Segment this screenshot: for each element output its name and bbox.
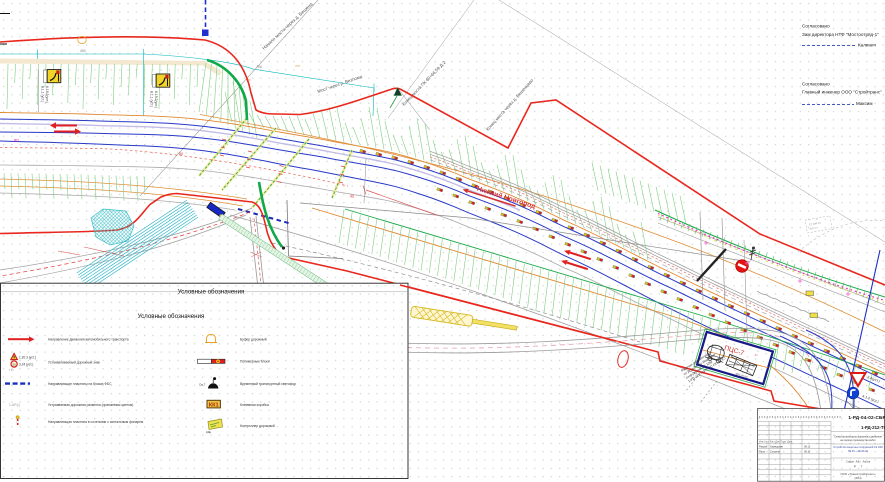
svg-text:1-РД-04-02-СБР-02: 1-РД-04-02-СБР-02 (848, 415, 885, 420)
svg-text:Главный инженер ООО "Стройтран: Главный инженер ООО "Стройтранс" (802, 89, 882, 95)
svg-text:Условные обозначения: Условные обозначения (178, 288, 245, 295)
svg-text:Зам директора НТФ "Мостоотряд-: Зам директора НТФ "Мостоотряд-1" (802, 32, 879, 37)
svg-text:Согласовано: Согласовано (802, 24, 830, 29)
svg-text:08.13: 08.13 (804, 451, 811, 454)
svg-text:(2013): (2013) (855, 477, 862, 480)
svg-text:6.19.2(уст.): 6.19.2(уст.) (45, 86, 49, 103)
svg-text:Устройство защитных сооружений: Устройство защитных сооружений СК 10М (833, 446, 882, 449)
svg-text:осв.: осв. (295, 64, 301, 68)
svg-text:1-РД-212-ТКРТ: 1-РД-212-ТКРТ (861, 425, 885, 430)
svg-text:Направляющие пластины на блока: Направляющие пластины на блоках ФБС (48, 382, 112, 386)
svg-text:Направление движения автомобил: Направление движения автомобильного тран… (48, 338, 129, 342)
svg-text:ООО «Трансстройпроект»: ООО «Трансстройпроект» (840, 472, 876, 476)
svg-text:3.24 (уст.): 3.24 (уст.) (19, 363, 33, 367)
svg-text:Устанавливаемый дорожный знак: Устанавливаемый дорожный знак (48, 361, 100, 365)
svg-text:Пров.: Пров. (759, 451, 766, 454)
svg-text:Стадия Лист Листов: Стадия Лист Листов (846, 462, 871, 464)
svg-text:Условные обозначения: Условные обозначения (138, 313, 205, 320)
svg-text:Согласовано: Согласовано (802, 82, 830, 87)
svg-text:Максим: Максим (856, 101, 873, 106)
svg-text:КК1: КК1 (209, 403, 219, 409)
svg-text:Временный транспортный светофо: Временный транспортный светофор (240, 382, 296, 386)
svg-text:Буфер дорожный: Буфер дорожный (240, 338, 267, 342)
svg-text:Калинич: Калинич (858, 42, 877, 47)
svg-text:Контроллер дорожный: Контроллер дорожный (240, 424, 275, 428)
svg-text:80: 80 (179, 152, 183, 156)
svg-text:8.1.1 (уст.): 8.1.1 (уст.) (40, 86, 44, 102)
svg-text:1.20.3 (уст.): 1.20.3 (уст.) (19, 356, 36, 360)
svg-text:Р 7: Р 7 (854, 464, 863, 468)
svg-text:80: 80 (14, 138, 19, 143)
svg-text:Изм. Кол. Лист Док. Подп. Дата: Изм. Кол. Лист Док. Подп. Дата (759, 442, 793, 444)
svg-text:8.1.1 (уст.): 8.1.1 (уст.) (149, 91, 153, 107)
svg-text:Хамидулин: Хамидулин (770, 445, 784, 448)
svg-text:Св.7: Св.7 (199, 383, 206, 387)
svg-text:Устраиваемая дорожная разметка: Устраиваемая дорожная разметка (оранжевы… (48, 403, 133, 407)
svg-text:6.19.2(уст.): 6.19.2(уст.) (154, 91, 158, 108)
svg-text:ПК 46 ÷ 49+06-02: ПК 46 ÷ 49+06-02 (848, 450, 869, 453)
svg-text:Клеммная коробка: Клеммная коробка (240, 403, 269, 407)
svg-text:Направляющая пластина в сочета: Направляющая пластина в сочетании с сигн… (48, 420, 144, 424)
svg-text:08.13: 08.13 (804, 445, 811, 448)
svg-text:Полимерные блоки: Полимерные блоки (240, 359, 270, 363)
svg-text:Соколов: Соколов (770, 451, 781, 454)
svg-text:400: 400 (80, 49, 86, 53)
svg-text:50: 50 (13, 362, 17, 366)
svg-text:Разраб.: Разраб. (759, 445, 768, 448)
svg-text:КДн: КДн (206, 430, 212, 434)
svg-text:1.АР.(\): 1.АР.(\) (9, 403, 20, 407)
svg-text:на период производства работ: на период производства работ (840, 439, 877, 442)
svg-text:5 уст: 5 уст (9, 370, 14, 372)
